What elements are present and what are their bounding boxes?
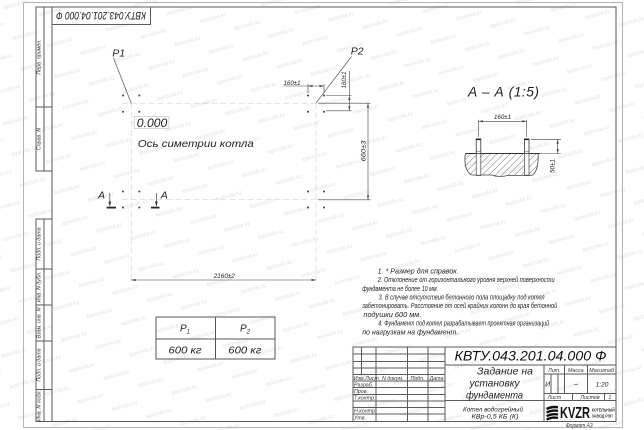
svg-text:P1: P1 [112, 48, 125, 60]
svg-text:А: А [97, 190, 105, 202]
svg-text:подушки 600 мм.: подушки 600 мм. [363, 310, 421, 319]
svg-text:КОТЕЛЬНЫЙ: КОТЕЛЬНЫЙ [592, 406, 615, 413]
svg-text:Разраб.: Разраб. [354, 382, 373, 388]
svg-text:Инв. N подл.: Инв. N подл. [36, 390, 42, 421]
svg-text:ЗАВОД РЭП: ЗАВОД РЭП [592, 413, 613, 418]
svg-text:1:20: 1:20 [596, 381, 609, 388]
svg-text:160±1: 160±1 [341, 71, 348, 88]
svg-text:Лист: Лист [547, 395, 562, 401]
svg-text:2160±2: 2160±2 [213, 273, 235, 280]
svg-text:KVZR: KVZR [560, 405, 590, 422]
svg-text:Масштаб: Масштаб [589, 368, 615, 374]
svg-text:КВТУ.043.201.04.000 Ф: КВТУ.043.201.04.000 Ф [455, 348, 607, 363]
svg-text:Подп.: Подп. [411, 376, 425, 382]
svg-text:2. Отклонение от горизонтально: 2. Отклонение от горизонтального уровня … [377, 275, 555, 284]
svg-text:600 кг: 600 кг [228, 346, 261, 357]
svg-text:фундамента: фундамента [466, 389, 523, 401]
svg-text:фундамента не более 10 мм.: фундамента не более 10 мм. [362, 284, 438, 293]
svg-text:Инв. N дубл.: Инв. N дубл. [36, 272, 42, 303]
svg-text:1: 1 [608, 395, 611, 401]
svg-text:Лит.: Лит. [547, 368, 560, 374]
svg-text:Справ. N: Справ. N [36, 128, 42, 150]
svg-text:160±1: 160±1 [494, 114, 511, 121]
svg-text:Формат А3: Формат А3 [566, 422, 593, 429]
svg-text:0.000: 0.000 [137, 118, 168, 130]
svg-text:3. В случае отсутствия бетонно: 3. В случае отсутствия бетонного пола пл… [379, 293, 545, 302]
svg-text:Задание на: Задание на [477, 366, 533, 378]
svg-text:по нагрузкам на фундамент.: по нагрузкам на фундамент. [362, 327, 458, 336]
svg-text:50±1: 50±1 [550, 159, 557, 173]
svg-text:КВТУ.043.201.04.000 Ф: КВТУ.043.201.04.000 Ф [56, 9, 146, 21]
svg-text:А: А [160, 190, 168, 202]
svg-text:Котел водогрейный: Котел водогрейный [463, 406, 523, 414]
svg-text:Листов: Листов [579, 395, 600, 401]
svg-text:Изм.Лист: Изм.Лист [354, 376, 380, 382]
svg-text:660±3: 660±3 [360, 140, 367, 161]
svg-text:КВр-0,5 КБ (К): КВр-0,5 КБ (К) [472, 414, 519, 421]
svg-text:Перв. примен.: Перв. примен. [36, 39, 42, 74]
svg-text:Н.контр.: Н.контр. [354, 409, 376, 415]
svg-text:1. * Размер для справок.: 1. * Размер для справок. [378, 266, 459, 275]
svg-text:600 кг: 600 кг [169, 346, 202, 357]
svg-text:Подп. и дата: Подп. и дата [36, 227, 42, 260]
svg-text:P2: P2 [351, 45, 364, 57]
svg-text:Подп. и дата: Подп. и дата [36, 348, 42, 381]
svg-text:–: – [573, 381, 578, 388]
svg-text:Т.контр.: Т.контр. [354, 396, 375, 402]
svg-text:Ось симетрии котла: Ось симетрии котла [138, 138, 254, 150]
svg-text:160±1: 160±1 [284, 80, 301, 87]
svg-text:N докум.: N докум. [382, 376, 403, 382]
svg-text:установку: установку [469, 378, 521, 390]
svg-text:Пров.: Пров. [354, 389, 368, 395]
svg-text:Взам. инв. N: Взам. инв. N [36, 307, 42, 338]
svg-text:Масса: Масса [568, 368, 584, 374]
svg-text:4. Фундамент под котел разраба: 4. Фундамент под котел разрабатывает про… [378, 319, 549, 328]
svg-text:Утв.: Утв. [354, 415, 366, 421]
svg-text:забетонировать. Расстояние от: забетонировать. Расстояние от осей крайн… [361, 301, 557, 310]
svg-text:А – А (1:5): А – А (1:5) [467, 84, 539, 99]
svg-text:Дата: Дата [429, 376, 444, 382]
